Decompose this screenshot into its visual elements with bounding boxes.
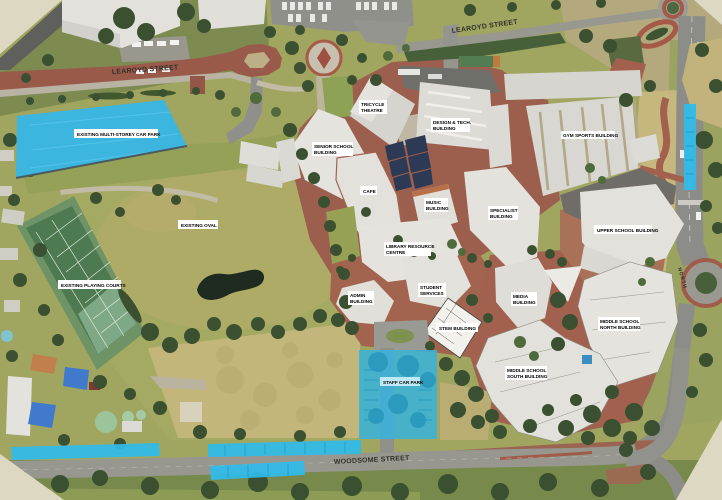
svg-text:SOUTH BUILDING: SOUTH BUILDING: [507, 374, 548, 379]
svg-text:BUILDING: BUILDING: [314, 150, 337, 155]
svg-text:THEATRE: THEATRE: [361, 108, 383, 113]
svg-text:LIBRARY RESOURCE: LIBRARY RESOURCE: [386, 244, 434, 249]
svg-text:BUILDING: BUILDING: [426, 206, 449, 211]
svg-text:STAFF CAR PARK: STAFF CAR PARK: [383, 380, 424, 385]
svg-text:CENTRE: CENTRE: [386, 250, 405, 255]
svg-text:STUDENT: STUDENT: [420, 285, 442, 290]
svg-text:SENIOR SCHOOL: SENIOR SCHOOL: [314, 144, 353, 149]
svg-text:BUILDING: BUILDING: [490, 214, 513, 219]
svg-text:BUILDING: BUILDING: [433, 126, 456, 131]
svg-text:TRICYCLE: TRICYCLE: [361, 102, 384, 107]
svg-text:CAFE: CAFE: [363, 189, 376, 194]
svg-text:SERVICES: SERVICES: [420, 291, 444, 296]
svg-text:EXISTING PLAYING COURTS: EXISTING PLAYING COURTS: [61, 283, 126, 288]
svg-text:STEM BUILDING: STEM BUILDING: [439, 326, 476, 331]
svg-text:DESIGN & TECH.: DESIGN & TECH.: [433, 120, 471, 125]
svg-text:EXISTING OVAL: EXISTING OVAL: [181, 223, 217, 228]
svg-text:MIDDLE SCHOOL: MIDDLE SCHOOL: [507, 368, 546, 373]
svg-text:UPPER SCHOOL BUILDING: UPPER SCHOOL BUILDING: [597, 228, 659, 233]
svg-text:SPECIALIST: SPECIALIST: [490, 208, 518, 213]
svg-text:BUILDING: BUILDING: [350, 299, 373, 304]
svg-text:MEDIA: MEDIA: [513, 294, 529, 299]
svg-text:GYM SPORTS BUILDING: GYM SPORTS BUILDING: [563, 133, 619, 138]
svg-text:ADMIN: ADMIN: [350, 293, 366, 298]
svg-text:MUSIC: MUSIC: [426, 200, 442, 205]
svg-text:BUILDING: BUILDING: [513, 300, 536, 305]
svg-text:MIDDLE SCHOOL: MIDDLE SCHOOL: [600, 319, 639, 324]
svg-text:EXISTING MULTI-STOREY CAR PARK: EXISTING MULTI-STOREY CAR PARK: [77, 132, 161, 137]
svg-text:NORTH BUILDING: NORTH BUILDING: [600, 325, 641, 330]
